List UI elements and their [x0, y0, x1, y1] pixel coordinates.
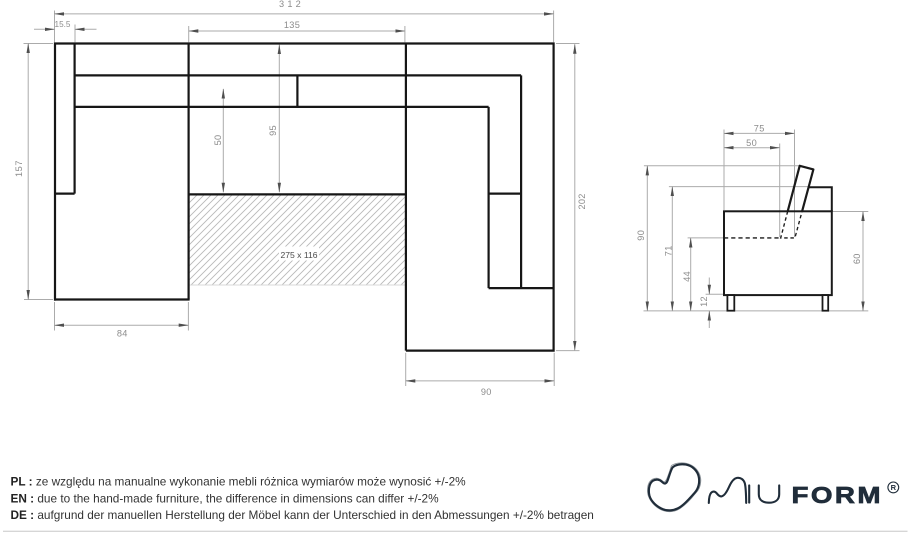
svg-text:DE : aufgrund der manuellen He: DE : aufgrund der manuellen Herstellung …	[11, 508, 594, 522]
svg-text:75: 75	[754, 123, 765, 133]
svg-text:EN : due to the hand-made furn: EN : due to the hand-made furniture, the…	[11, 491, 440, 505]
svg-text:50: 50	[213, 135, 223, 146]
svg-text:135: 135	[284, 20, 300, 30]
svg-text:50: 50	[746, 138, 757, 148]
svg-text:60: 60	[852, 253, 862, 264]
svg-text:84: 84	[117, 329, 128, 339]
svg-text:312: 312	[279, 0, 304, 9]
svg-text:12: 12	[699, 296, 709, 307]
svg-text:275 x 116: 275 x 116	[280, 250, 317, 260]
svg-text:95: 95	[268, 125, 278, 136]
svg-text:FORM: FORM	[792, 482, 884, 508]
svg-text:202: 202	[577, 193, 587, 209]
svg-text:15.5: 15.5	[55, 20, 71, 29]
svg-text:90: 90	[636, 230, 646, 241]
svg-text:44: 44	[682, 271, 692, 282]
svg-text:PL : ze względu na manualne wy: PL : ze względu na manualne wykonanie me…	[11, 474, 467, 488]
svg-text:71: 71	[664, 245, 674, 256]
svg-text:157: 157	[14, 160, 24, 177]
svg-text:90: 90	[481, 387, 492, 397]
svg-text:R: R	[891, 483, 897, 492]
